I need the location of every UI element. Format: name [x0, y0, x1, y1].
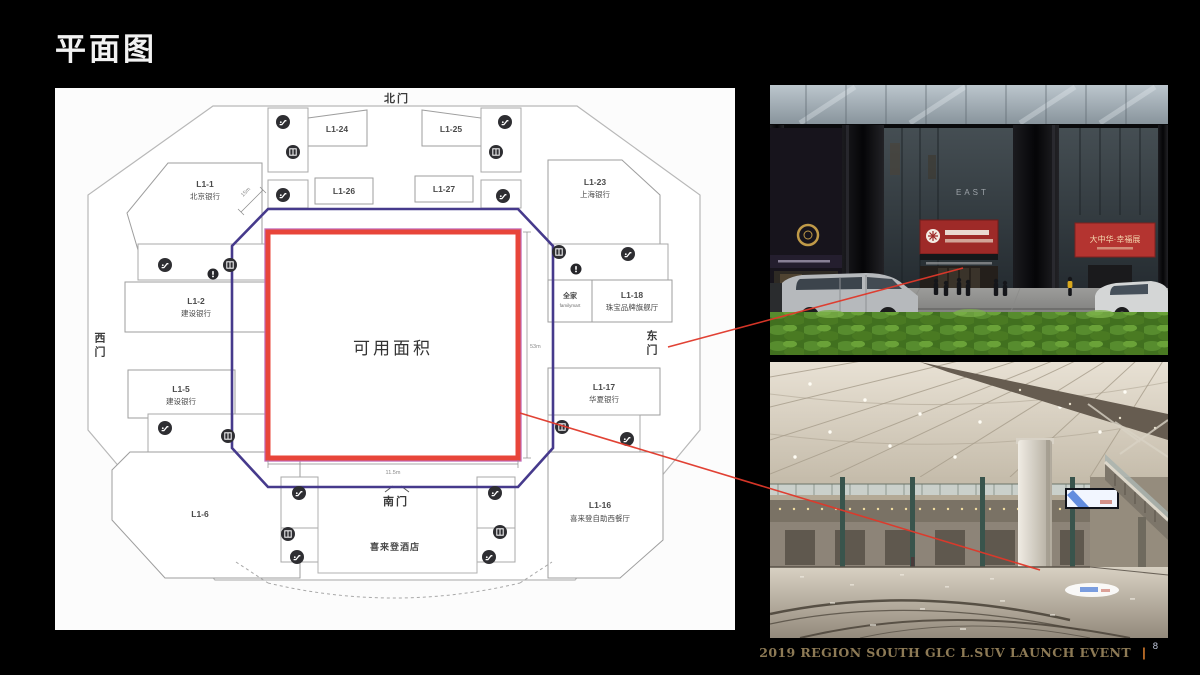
escalator-icon	[276, 115, 290, 129]
svg-text:familymart: familymart	[560, 303, 582, 308]
accessible-info-icon	[208, 269, 219, 280]
west-gate-label: 西门	[93, 332, 104, 360]
page-number: 8	[1153, 641, 1158, 652]
svg-text:上海银行: 上海银行	[580, 189, 610, 199]
footer-event-title: 2019 REGION SOUTH GLC L.SUV LAUNCH EVENT	[759, 645, 1131, 660]
corridor	[138, 244, 268, 280]
escalator-icon	[498, 115, 512, 129]
escalator-icon	[488, 486, 502, 500]
svg-text:建设银行: 建设银行	[166, 396, 196, 406]
svg-text:11.5m: 11.5m	[386, 470, 401, 476]
svg-text:L1-17: L1-17	[593, 382, 615, 392]
vestibule	[281, 477, 318, 528]
elevator-icon	[493, 525, 507, 539]
floor-plan-drawing: L1-24 L1-25 L1-26 L1-27 L1-1 北京银行 L1-2	[55, 88, 735, 630]
accessible-info-icon	[571, 264, 582, 275]
east-gate-label: 东门	[645, 330, 656, 358]
screen-floor-reflection	[1065, 583, 1119, 597]
elevator-icon	[281, 527, 295, 541]
photo-building-entrance: EAST 大中华·幸福展	[770, 85, 1168, 355]
escalator-icon	[482, 550, 496, 564]
svg-text:L1-23: L1-23	[584, 177, 606, 187]
south-gate-label: 南门	[383, 494, 409, 508]
unit-l1-17: L1-17 华夏银行	[548, 368, 660, 415]
escalator-icon	[620, 432, 634, 446]
parked-dark-car	[770, 283, 782, 317]
elevator-icon	[286, 145, 300, 159]
svg-text:珠宝品牌旗舰厅: 珠宝品牌旗舰厅	[606, 302, 659, 312]
led-screen	[1065, 488, 1119, 509]
elevator-icon	[223, 258, 237, 272]
hedge	[770, 309, 1168, 355]
svg-text:华夏银行: 华夏银行	[589, 394, 619, 404]
marble-floor	[770, 567, 1168, 638]
escalator-icon	[496, 189, 510, 203]
driveway-arc	[268, 583, 520, 598]
page-title: 平面图	[55, 24, 157, 69]
svg-text:L1-25: L1-25	[440, 124, 462, 134]
svg-text:北京银行: 北京银行	[190, 191, 220, 201]
available-area-label: 可用面积	[353, 339, 433, 358]
unit-l1-16: L1-16 喜来登自助西餐厅	[548, 452, 663, 578]
svg-text:L1-2: L1-2	[187, 296, 205, 306]
svg-text:L1-24: L1-24	[326, 124, 348, 134]
escalator-icon	[292, 486, 306, 500]
svg-text:L1-5: L1-5	[172, 384, 190, 394]
svg-text:喜来登自助西餐厅: 喜来登自助西餐厅	[570, 513, 630, 523]
elevator-icon	[555, 420, 569, 434]
floor-plan-panel: L1-24 L1-25 L1-26 L1-27 L1-1 北京银行 L1-2	[55, 88, 735, 630]
svg-text:L1-6: L1-6	[191, 509, 209, 519]
glass-canopy	[770, 85, 1168, 128]
distant-person	[911, 557, 915, 567]
svg-text:53m: 53m	[530, 344, 541, 350]
north-gate-label: 北门	[384, 91, 410, 105]
escalator-icon	[290, 550, 304, 564]
unit-l1-6: L1-6	[112, 452, 300, 578]
escalator-icon	[621, 247, 635, 261]
elevator-icon	[552, 245, 566, 259]
svg-text:L1-16: L1-16	[589, 500, 611, 510]
unit-l1-2: L1-2 建设银行	[125, 282, 268, 332]
svg-text:L1-1: L1-1	[196, 179, 214, 189]
escalator-icon	[158, 421, 172, 435]
vestibule	[477, 477, 515, 528]
entrance-red-sign	[920, 220, 998, 265]
svg-text:L1-27: L1-27	[433, 184, 455, 194]
svg-text:全家: 全家	[562, 291, 578, 300]
elevator-icon	[489, 145, 503, 159]
escalator-icon	[158, 258, 172, 272]
left-storefront	[770, 128, 842, 288]
svg-text:L1-18: L1-18	[621, 290, 643, 300]
footer-divider: |	[1142, 645, 1146, 660]
hotel-label: 喜来登酒店	[370, 541, 420, 552]
svg-text:L1-26: L1-26	[333, 186, 355, 196]
unit-l1-27: L1-27	[415, 176, 473, 202]
unit-l1-26: L1-26	[315, 178, 373, 204]
unit-l1-5: L1-5 建设银行	[128, 370, 235, 418]
escalator-icon	[276, 188, 290, 202]
elevator-icon	[221, 429, 235, 443]
slide-footer: 2019 REGION SOUTH GLC L.SUV LAUNCH EVENT…	[759, 645, 1158, 660]
unit-familymart: 全家 familymart	[548, 280, 592, 322]
svg-text:大中华·幸福展: 大中华·幸福展	[1090, 234, 1141, 244]
svg-text:建设银行: 建设银行	[181, 308, 211, 318]
unit-l1-18: L1-18 珠宝品牌旗舰厅	[592, 280, 672, 322]
building-sign-text: EAST	[956, 188, 989, 197]
corridor	[548, 244, 668, 280]
photo-atrium-interior	[770, 362, 1168, 638]
safety-vest-person	[1068, 277, 1073, 296]
